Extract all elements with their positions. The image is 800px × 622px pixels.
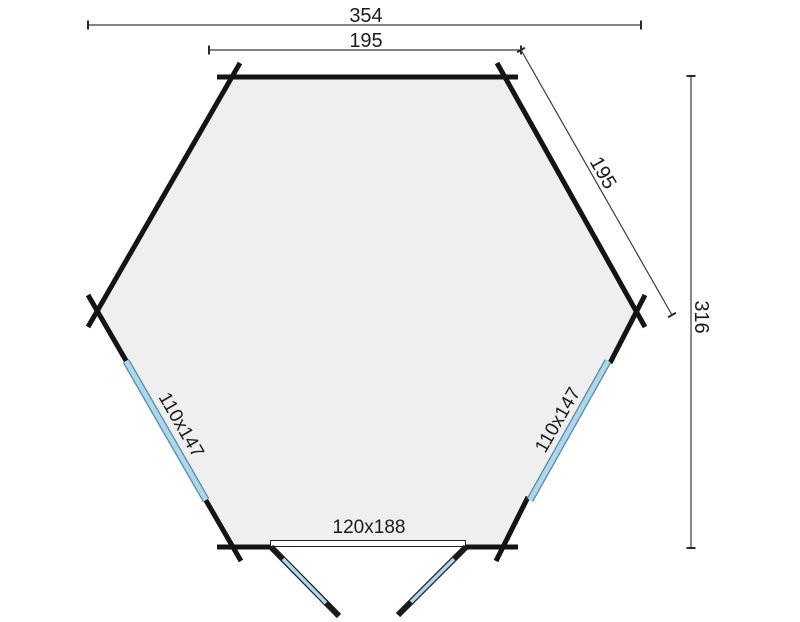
overall-width-label: 354 bbox=[349, 5, 382, 27]
overall-depth-label: 316 bbox=[690, 300, 712, 333]
upper-right-wall-label: 195 bbox=[585, 153, 621, 193]
dim-tick bbox=[668, 313, 676, 317]
dim-overall-depth: 316 bbox=[687, 76, 713, 548]
door-leaf-right bbox=[398, 547, 466, 615]
floor-area bbox=[97, 77, 636, 547]
door-label: 120x188 bbox=[333, 517, 406, 538]
dim-overall-width: 354 bbox=[88, 5, 641, 30]
door-leaf-left bbox=[271, 547, 339, 616]
dim-top-wall: 195 bbox=[209, 30, 521, 55]
top-wall-label: 195 bbox=[349, 30, 382, 52]
floor-plan-drawing: 354 195 195 316 bbox=[0, 0, 800, 622]
floor-plan-page: 354 195 195 316 bbox=[0, 0, 800, 622]
door-threshold bbox=[271, 541, 466, 547]
